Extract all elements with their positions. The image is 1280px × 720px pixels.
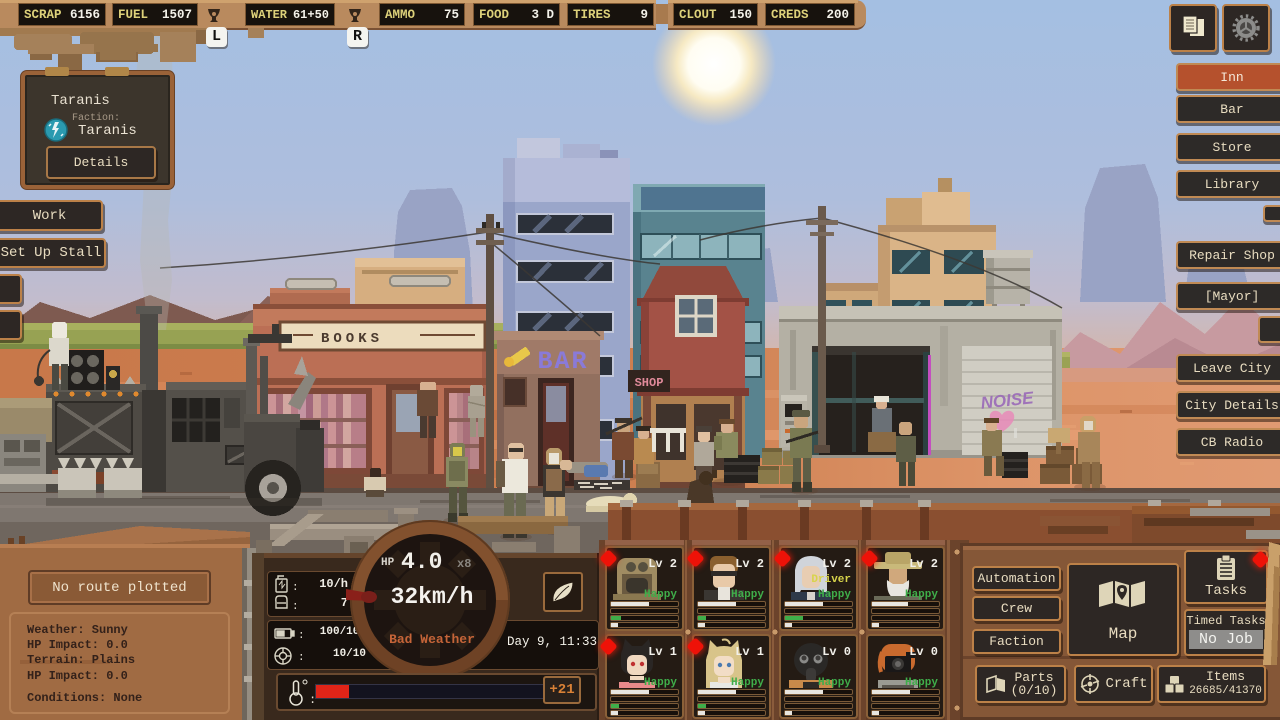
svg-text:BOOKS: BOOKS: [321, 331, 383, 347]
svg-text:BAR: BAR: [537, 347, 588, 376]
svg-text:SHOP: SHOP: [635, 376, 664, 390]
